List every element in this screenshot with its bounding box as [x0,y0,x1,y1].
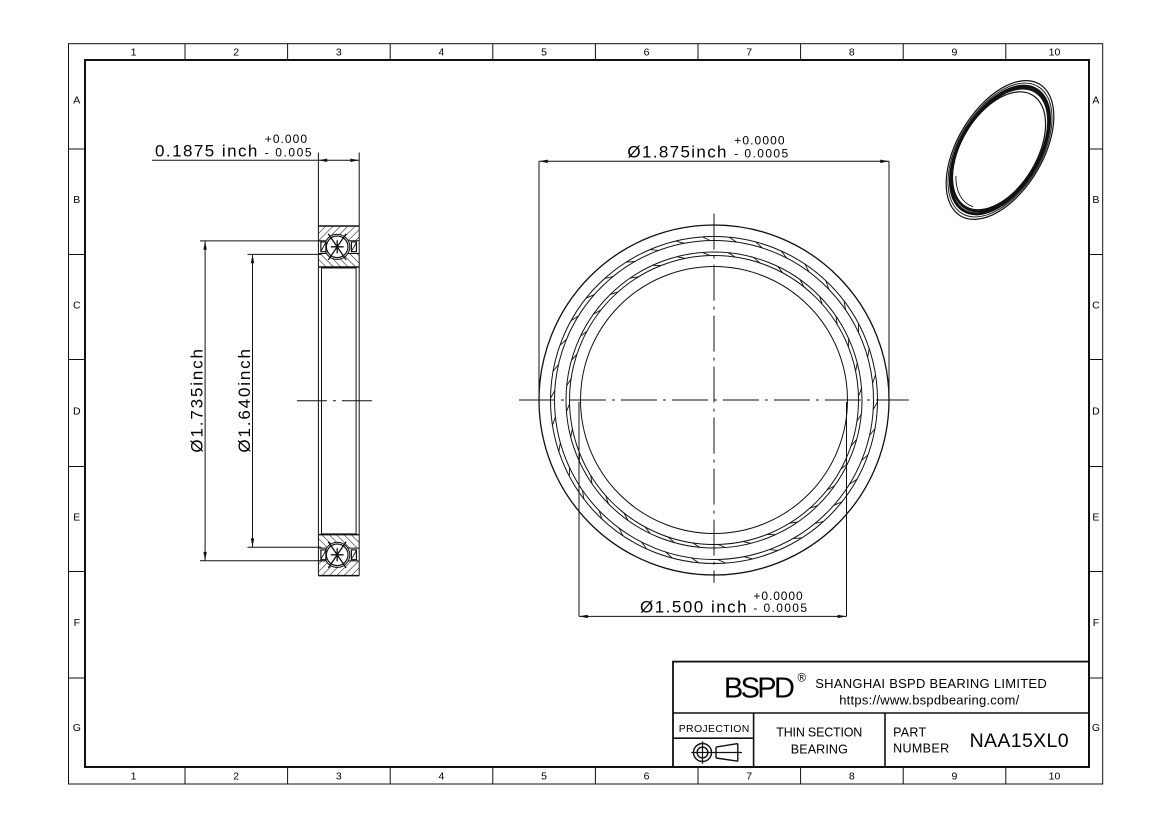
svg-text:NUMBER: NUMBER [893,742,949,756]
svg-text:C: C [1092,300,1100,312]
svg-text:F: F [1093,617,1099,629]
svg-text:- 0.005: - 0.005 [265,146,312,160]
svg-text:9: 9 [951,770,957,782]
svg-text:B: B [1092,194,1099,206]
svg-text:1: 1 [131,770,137,782]
svg-text:8: 8 [849,47,855,59]
svg-text:C: C [73,300,81,312]
svg-text:PROJECTION: PROJECTION [679,723,750,735]
svg-text:Ø1.500 inch: Ø1.500 inch [640,598,747,617]
svg-text:7: 7 [746,47,752,59]
svg-text:6: 6 [644,770,650,782]
svg-text:D: D [1092,406,1100,418]
svg-text:PART: PART [893,726,926,740]
svg-text:BEARING: BEARING [791,743,848,757]
svg-text:A: A [73,94,80,106]
svg-text:3: 3 [336,47,342,59]
svg-text:THIN SECTION: THIN SECTION [776,726,862,740]
svg-text:NAA15XL0: NAA15XL0 [970,730,1069,752]
svg-text:®: ® [798,673,807,685]
svg-text:Ø1.735inch: Ø1.735inch [188,349,207,453]
svg-text:10: 10 [1049,47,1061,59]
svg-text:5: 5 [541,47,547,59]
svg-text:7: 7 [746,770,752,782]
svg-text:3: 3 [336,770,342,782]
svg-text:G: G [1092,722,1100,734]
svg-text:4: 4 [438,770,444,782]
svg-text:1: 1 [131,47,137,59]
svg-text:E: E [1092,512,1099,524]
svg-text:9: 9 [951,47,957,59]
svg-text:10: 10 [1049,770,1061,782]
svg-text:https://www.bspdbearing.com/: https://www.bspdbearing.com/ [839,693,1019,708]
svg-text:5: 5 [541,770,547,782]
svg-text:F: F [74,617,80,629]
svg-text:8: 8 [849,770,855,782]
svg-text:Ø1.640inch: Ø1.640inch [235,349,254,453]
svg-text:SHANGHAI BSPD BEARING LIMITED: SHANGHAI BSPD BEARING LIMITED [815,676,1047,691]
svg-text:4: 4 [438,47,444,59]
svg-text:E: E [73,512,80,524]
svg-text:6: 6 [644,47,650,59]
svg-text:2: 2 [233,47,239,59]
svg-text:G: G [73,722,81,734]
svg-text:D: D [73,406,81,418]
svg-text:BSPD: BSPD [724,672,795,704]
svg-text:+0.0000: +0.0000 [734,134,785,148]
svg-text:B: B [73,194,80,206]
svg-text:0.1875 inch: 0.1875 inch [155,142,257,161]
svg-text:Ø1.875inch: Ø1.875inch [627,142,726,161]
svg-text:2: 2 [233,770,239,782]
svg-text:+0.000: +0.000 [265,132,308,146]
svg-text:A: A [1092,94,1099,106]
